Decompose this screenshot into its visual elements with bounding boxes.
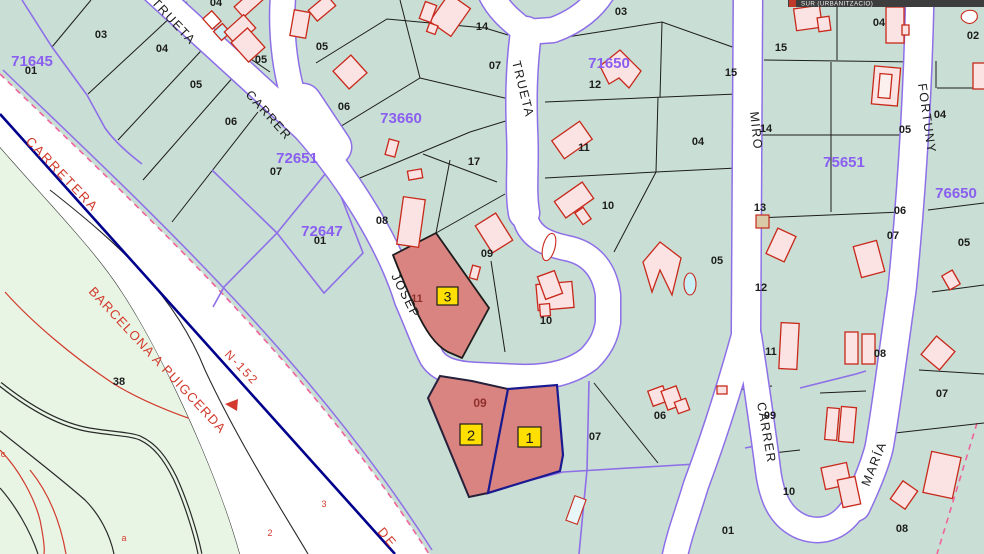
svg-text:c: c	[1, 449, 6, 459]
svg-text:1: 1	[525, 430, 533, 447]
svg-text:38: 38	[113, 376, 125, 388]
svg-text:76650: 76650	[935, 185, 977, 202]
svg-text:05: 05	[899, 124, 911, 136]
svg-text:03: 03	[615, 6, 627, 18]
svg-text:11: 11	[765, 346, 777, 358]
svg-text:17: 17	[468, 156, 480, 168]
svg-text:04: 04	[692, 136, 705, 148]
svg-text:72651: 72651	[276, 150, 318, 167]
svg-text:05: 05	[316, 41, 328, 53]
svg-text:2: 2	[267, 528, 272, 538]
svg-text:SUR (URBANITZACIO): SUR (URBANITZACIO)	[801, 1, 873, 8]
svg-text:04: 04	[873, 17, 886, 29]
svg-text:a: a	[121, 533, 126, 543]
svg-text:05: 05	[711, 255, 723, 267]
svg-text:3: 3	[444, 289, 452, 305]
svg-text:04: 04	[934, 109, 947, 121]
svg-text:10: 10	[540, 315, 552, 327]
svg-text:07: 07	[887, 230, 899, 242]
svg-text:04: 04	[156, 43, 169, 55]
svg-text:09: 09	[473, 396, 487, 410]
svg-text:10: 10	[783, 486, 795, 498]
svg-text:06: 06	[338, 101, 350, 113]
svg-text:11: 11	[578, 142, 590, 154]
svg-text:07: 07	[936, 388, 948, 400]
svg-text:08: 08	[874, 348, 886, 360]
svg-text:73660: 73660	[380, 110, 422, 127]
svg-text:12: 12	[589, 79, 601, 91]
svg-text:03: 03	[95, 29, 107, 41]
svg-text:02: 02	[967, 30, 979, 42]
svg-text:06: 06	[894, 205, 906, 217]
svg-text:15: 15	[775, 42, 787, 54]
svg-text:05: 05	[255, 54, 267, 66]
svg-text:12: 12	[755, 282, 767, 294]
svg-text:09: 09	[481, 248, 493, 260]
svg-text:13: 13	[754, 202, 766, 214]
svg-text:2: 2	[467, 428, 475, 445]
svg-text:06: 06	[225, 116, 237, 128]
svg-text:07: 07	[489, 60, 501, 72]
svg-text:08: 08	[376, 215, 388, 227]
svg-text:71650: 71650	[588, 55, 630, 72]
svg-text:14: 14	[476, 21, 489, 33]
svg-text:04: 04	[210, 0, 223, 9]
svg-text:10: 10	[602, 200, 614, 212]
svg-text:01: 01	[314, 235, 326, 247]
svg-text:07: 07	[270, 166, 282, 178]
svg-text:3: 3	[321, 499, 326, 509]
svg-text:05: 05	[958, 237, 970, 249]
svg-text:01: 01	[25, 65, 37, 77]
svg-text:08: 08	[896, 523, 908, 535]
svg-text:01: 01	[722, 525, 734, 537]
svg-text:05: 05	[190, 79, 202, 91]
svg-text:06: 06	[654, 410, 666, 422]
svg-text:07: 07	[589, 431, 601, 443]
svg-text:15: 15	[725, 67, 737, 79]
svg-text:75651: 75651	[823, 154, 865, 171]
